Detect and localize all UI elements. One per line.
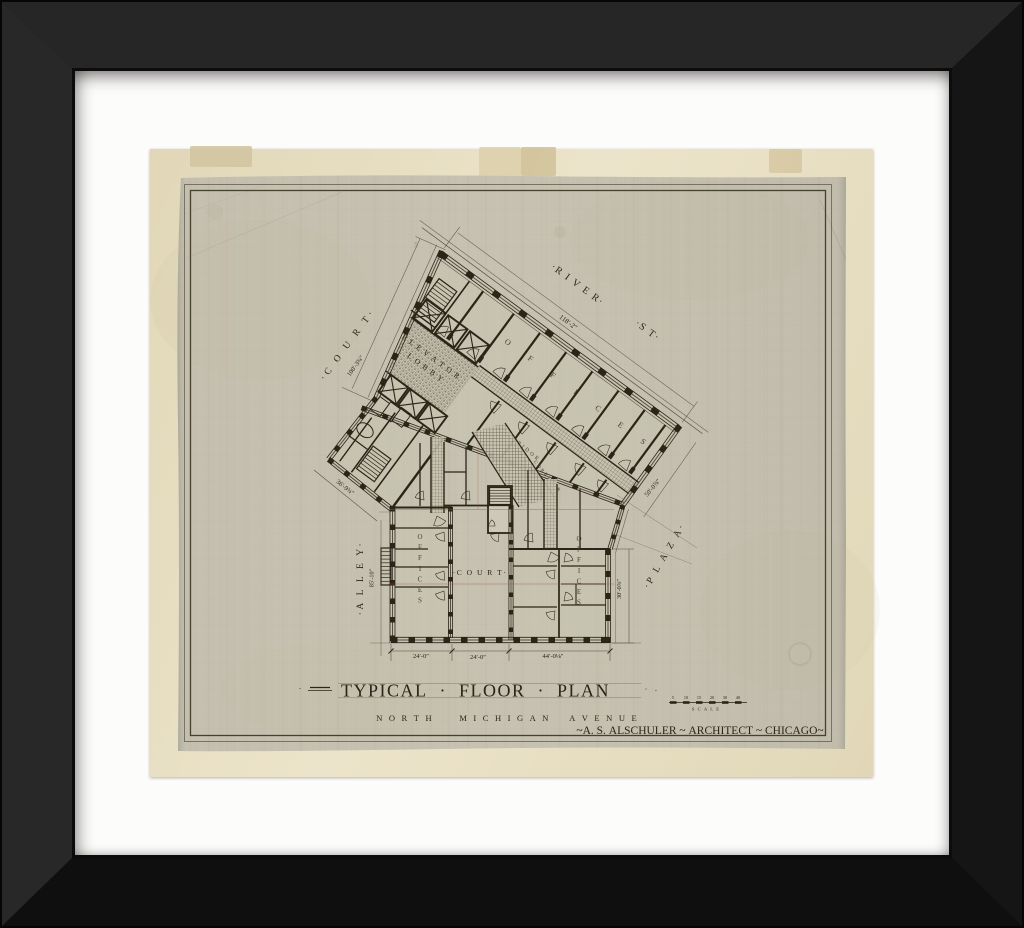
- svg-text:5: 5: [414, 241, 418, 249]
- svg-text:24′-0″: 24′-0″: [470, 654, 486, 661]
- svg-text:·: ·: [655, 687, 658, 696]
- svg-text:30′-0⅞″: 30′-0⅞″: [616, 579, 623, 599]
- svg-text:10: 10: [684, 695, 688, 700]
- svg-text:·C O U R T·: ·C O U R T·: [453, 568, 507, 577]
- svg-text:·: ·: [645, 685, 648, 694]
- svg-text:85′-10″: 85′-10″: [369, 568, 376, 587]
- svg-text:·A L L E Y·: ·A L L E Y·: [356, 541, 366, 615]
- svg-text:S: S: [577, 599, 581, 607]
- svg-text:M I C H I G A N: M I C H I G A N: [459, 713, 550, 723]
- svg-text:O: O: [576, 535, 581, 543]
- svg-text:S: S: [418, 597, 422, 605]
- svg-text:·: ·: [299, 685, 302, 694]
- svg-text:C: C: [418, 575, 423, 583]
- svg-text:TYPICAL · FLOOR · PLAN: TYPICAL · FLOOR · PLAN: [341, 681, 610, 701]
- svg-text:5: 5: [672, 695, 674, 700]
- svg-text:40: 40: [736, 695, 740, 700]
- svg-text:F: F: [418, 554, 422, 562]
- svg-text:30: 30: [723, 695, 727, 700]
- svg-text:N O R T H: N O R T H: [376, 713, 434, 723]
- svg-text:S C A L E: S C A L E: [692, 707, 720, 712]
- svg-text:24′-0″: 24′-0″: [413, 653, 429, 660]
- svg-text:20: 20: [710, 695, 714, 700]
- svg-text:F: F: [577, 546, 581, 554]
- svg-text:F: F: [577, 556, 581, 564]
- svg-text:~A. S. ALSCHULER ~ ARCHITECT ~: ~A. S. ALSCHULER ~ ARCHITECT ~ CHICAGO~: [576, 725, 823, 737]
- svg-text:O: O: [417, 533, 422, 541]
- svg-text:F: F: [418, 544, 422, 552]
- svg-text:A V E N U E: A V E N U E: [569, 713, 639, 723]
- svg-text:15: 15: [697, 695, 701, 700]
- svg-text:44′-0⅛″: 44′-0⅛″: [543, 653, 564, 660]
- svg-text:E: E: [577, 588, 581, 596]
- svg-text:E: E: [418, 586, 422, 594]
